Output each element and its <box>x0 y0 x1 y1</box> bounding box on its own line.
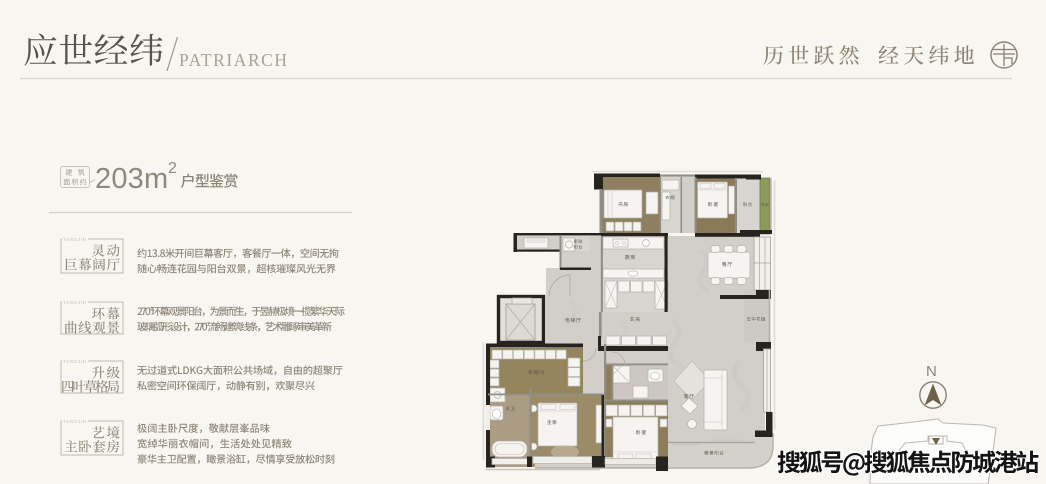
svg-text:2: 2 <box>168 160 177 177</box>
svg-text:PATRIARCH: PATRIARCH <box>179 50 289 70</box>
svg-text:N: N <box>926 363 937 380</box>
svg-text:TANGJIN: TANGJIN <box>63 300 87 305</box>
svg-text:203m: 203m <box>95 163 168 195</box>
svg-text:TANGJIN: TANGJIN <box>63 359 87 364</box>
svg-text:TANGJIN: TANGJIN <box>63 419 87 424</box>
svg-text:TANGJIN: TANGJIN <box>63 237 87 242</box>
